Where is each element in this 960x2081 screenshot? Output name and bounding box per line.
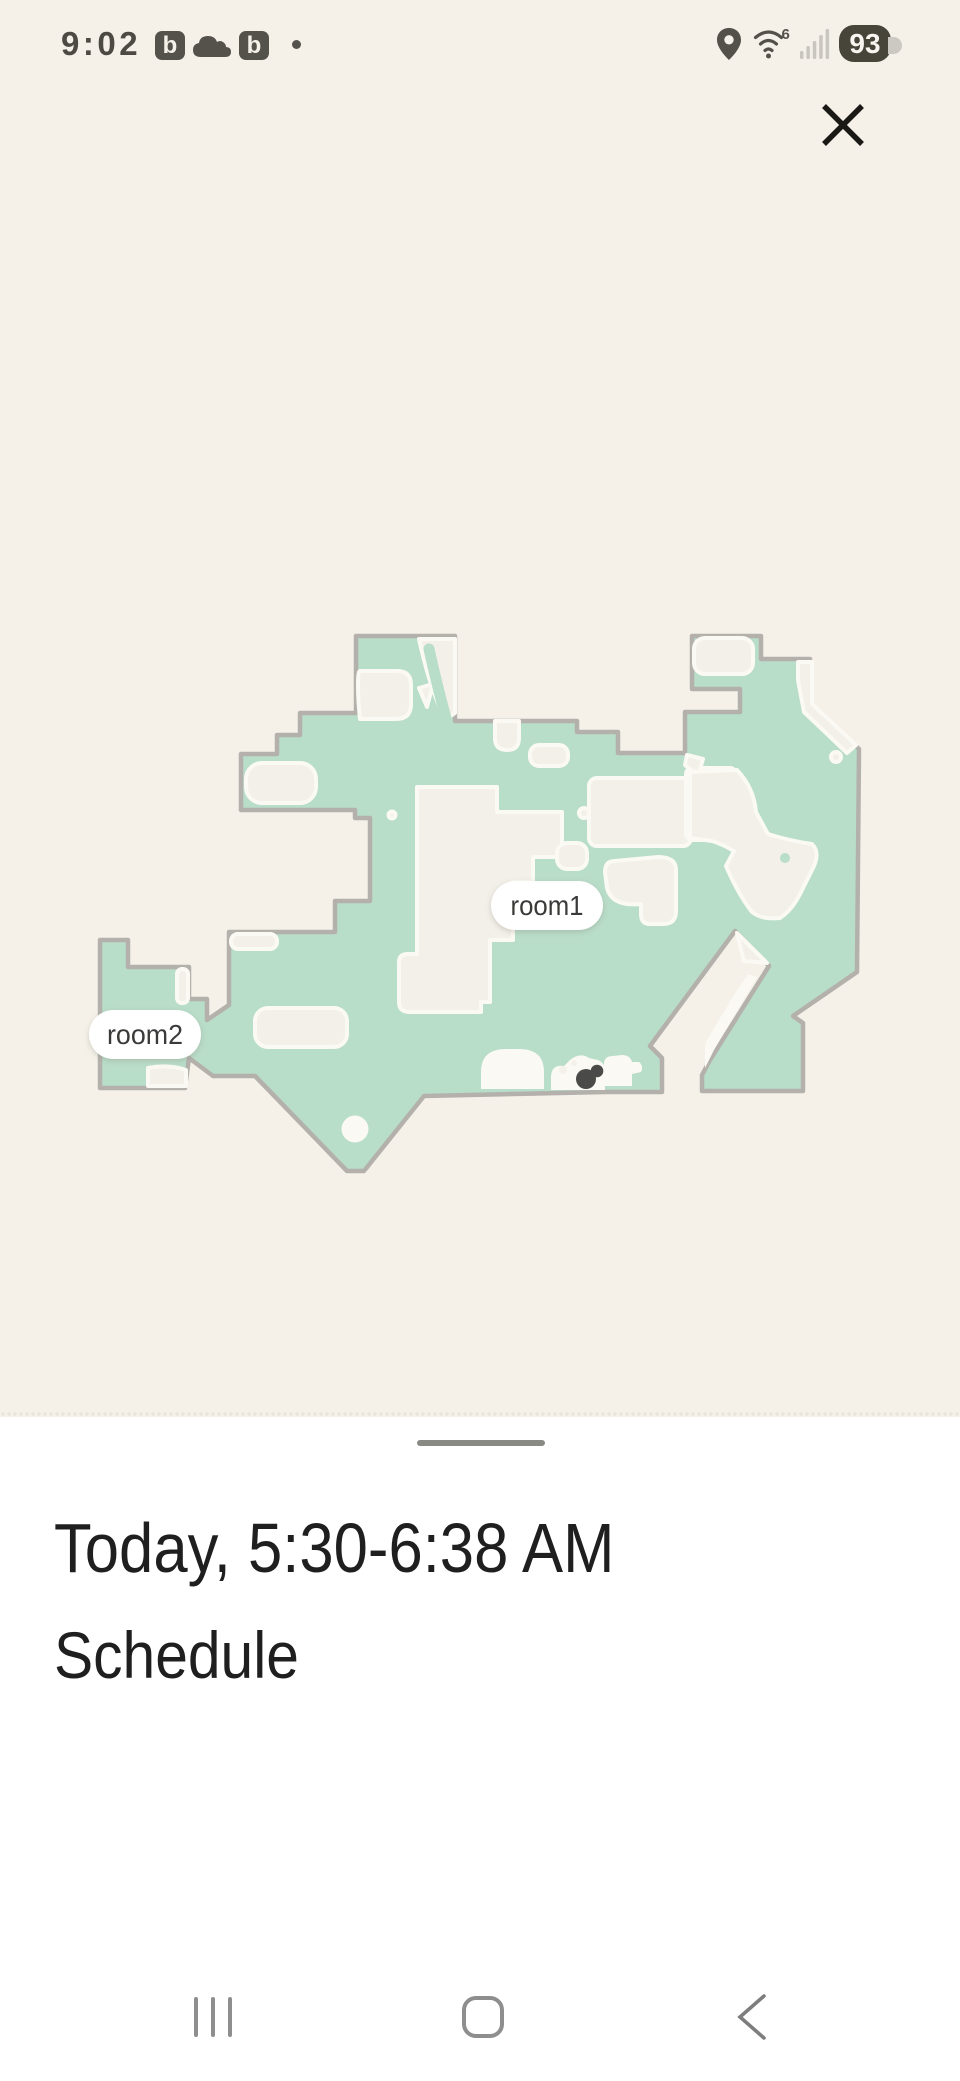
svg-text:room1: room1	[511, 890, 584, 921]
svg-text:room2: room2	[107, 1019, 183, 1050]
